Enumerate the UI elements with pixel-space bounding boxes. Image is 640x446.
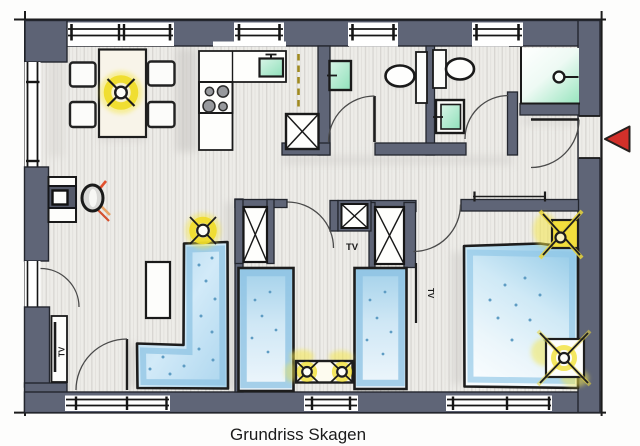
svg-text:TV: TV [346, 242, 359, 253]
svg-text:TV: TV [58, 346, 67, 357]
svg-text:TV: TV [426, 288, 435, 299]
svg-text:Grundriss Skagen: Grundriss Skagen [230, 425, 366, 444]
